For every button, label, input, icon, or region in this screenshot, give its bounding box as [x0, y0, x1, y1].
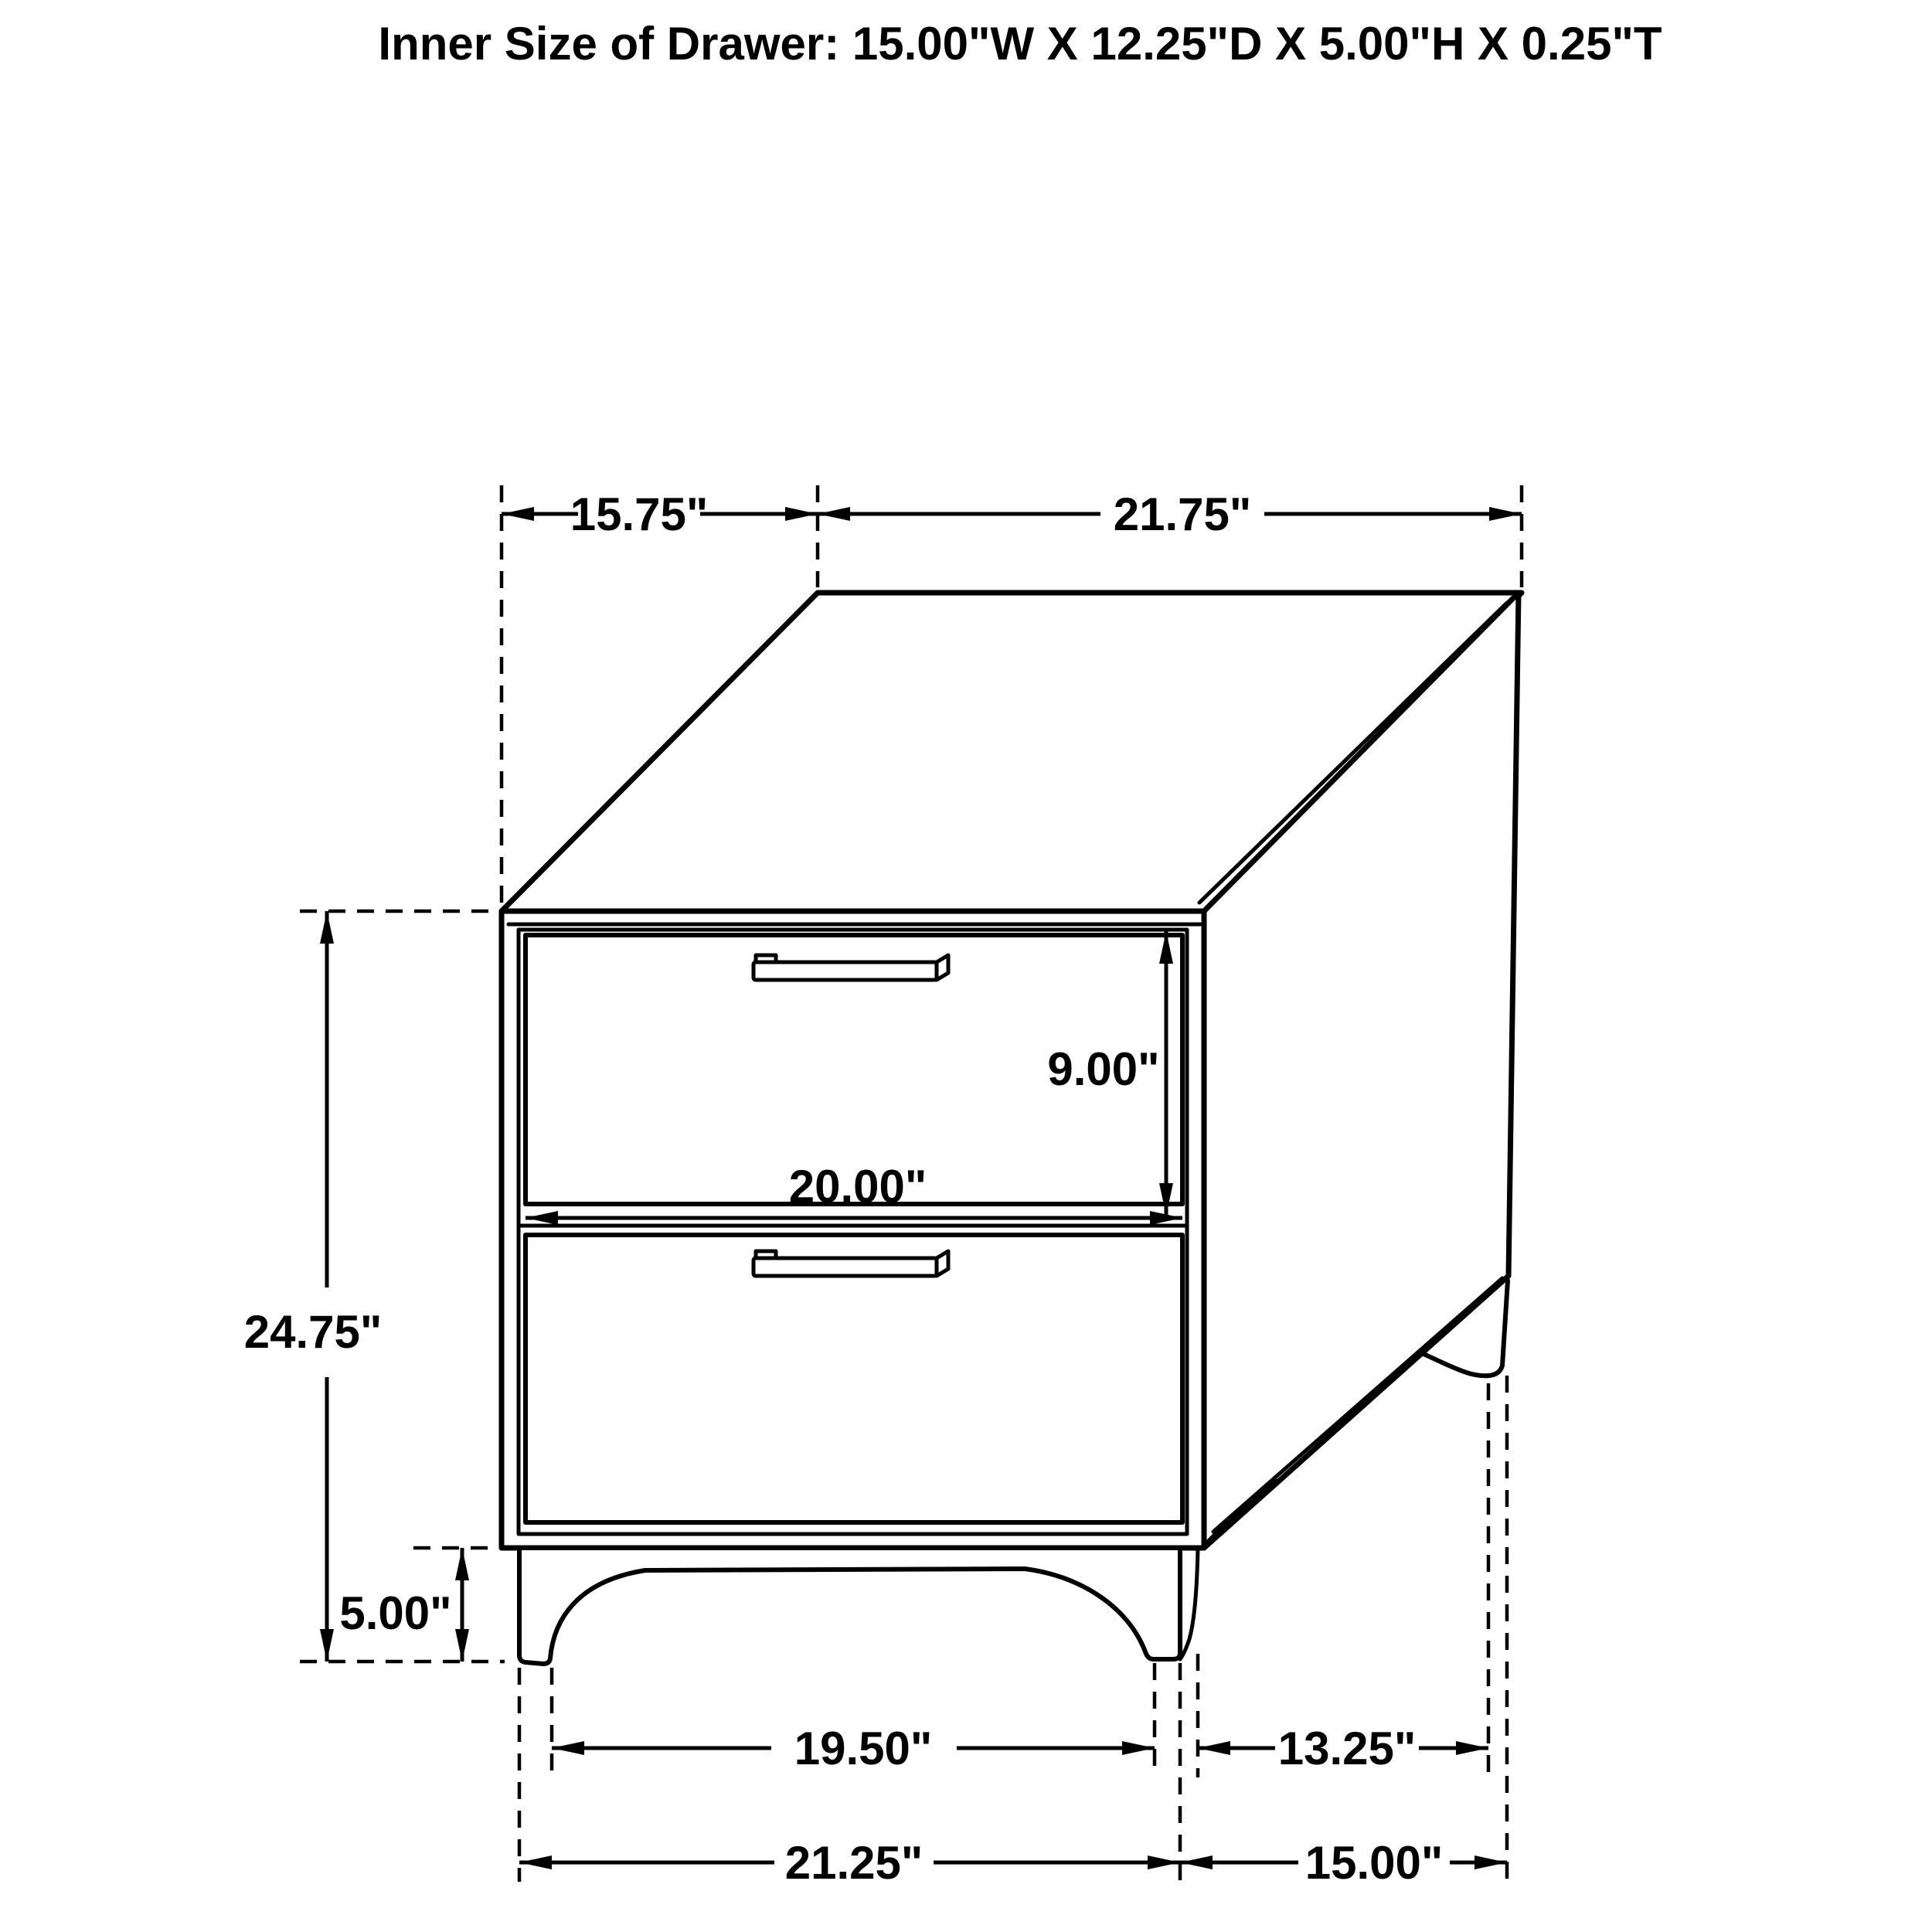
dim-label-front-leg-inner-span: 19.50" — [794, 1723, 933, 1774]
dim-label-drawer-front-width: 20.00" — [789, 1161, 927, 1213]
drawer-2 — [526, 1235, 1182, 1522]
dim-label-overall-height: 24.75" — [244, 1306, 383, 1358]
dim-label-side-floor-depth: 15.00" — [1305, 1837, 1444, 1889]
dim-label-side-leg-inner-span: 13.25" — [1278, 1723, 1417, 1774]
dim-label-front-floor-width: 21.25" — [785, 1837, 923, 1889]
dim-label-top-width: 21.75" — [1114, 488, 1252, 540]
drawer-2-handle-bar — [753, 1258, 937, 1276]
dim-label-top-depth: 15.75" — [570, 488, 709, 540]
page-title: Inner Size of Drawer: 15.00"W X 12.25"D … — [378, 18, 1662, 70]
dim-label-leg-height: 5.00" — [339, 1587, 451, 1639]
drawer-1-handle-bar — [753, 962, 937, 980]
nightstand-dimension-diagram: Inner Size of Drawer: 15.00"W X 12.25"D … — [0, 0, 1932, 1932]
dim-label-drawer-opening-height: 9.00" — [1047, 1043, 1159, 1095]
dimension-drawing-page: Inner Size of Drawer: 15.00"W X 12.25"D … — [0, 0, 1932, 1932]
